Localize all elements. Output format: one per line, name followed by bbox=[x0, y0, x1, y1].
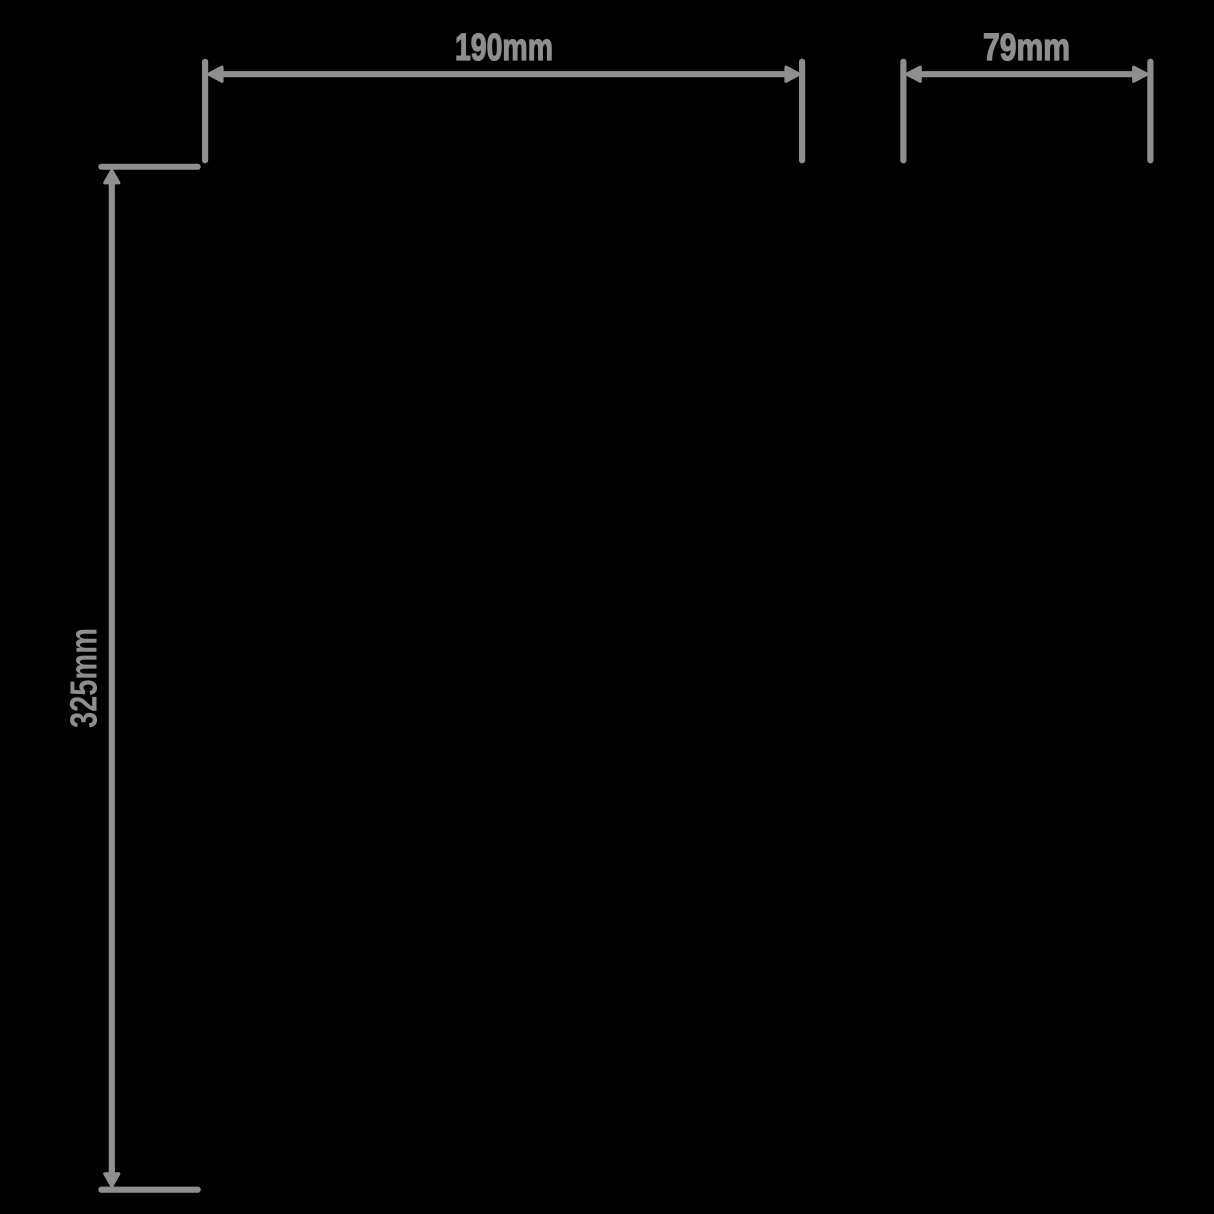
svg-text:190mm: 190mm bbox=[455, 27, 553, 69]
svg-text:325mm: 325mm bbox=[64, 628, 106, 728]
svg-text:79mm: 79mm bbox=[983, 27, 1070, 69]
